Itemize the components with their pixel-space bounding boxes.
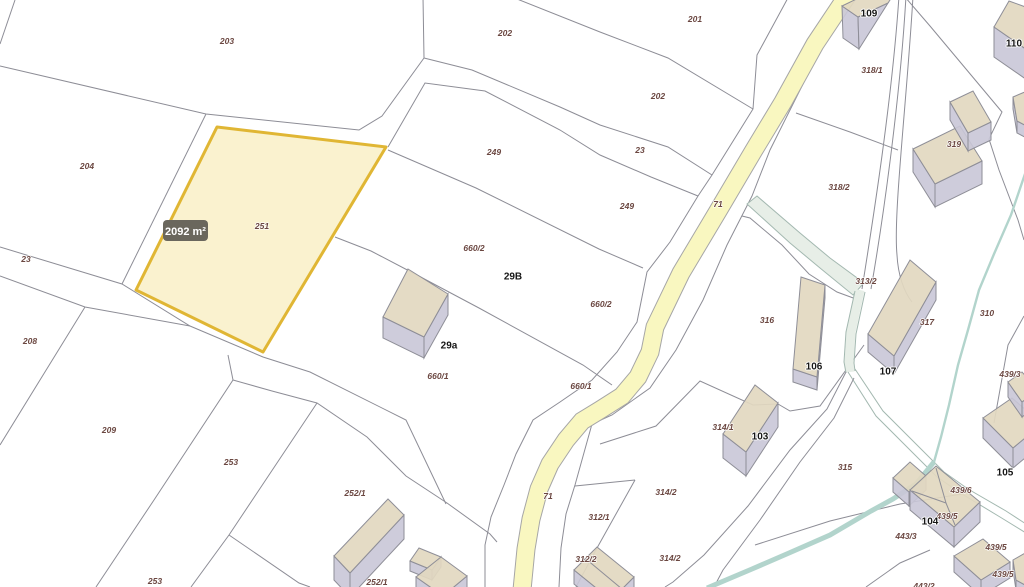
svg-text:660/2: 660/2 [463,243,485,253]
svg-text:318/2: 318/2 [828,182,850,192]
svg-text:660/2: 660/2 [590,299,612,309]
svg-text:317: 317 [920,317,935,327]
svg-text:439/6: 439/6 [949,485,972,495]
svg-text:314/2: 314/2 [659,553,681,563]
svg-text:202: 202 [497,28,512,38]
svg-text:249: 249 [486,147,501,157]
svg-text:109: 109 [861,9,878,20]
svg-text:251: 251 [254,221,269,231]
svg-text:252/1: 252/1 [343,488,366,498]
svg-text:315: 315 [838,462,852,472]
svg-text:71: 71 [543,491,553,501]
svg-text:249: 249 [619,201,634,211]
svg-text:23: 23 [634,145,645,155]
svg-text:319: 319 [947,139,961,149]
svg-text:105: 105 [997,468,1014,479]
svg-text:29B: 29B [504,272,522,283]
svg-text:312/1: 312/1 [588,512,610,522]
svg-text:439/5: 439/5 [935,511,958,521]
svg-text:253: 253 [147,576,162,586]
svg-text:204: 204 [79,161,94,171]
svg-text:209: 209 [101,425,116,435]
svg-text:104: 104 [922,517,939,528]
svg-text:316: 316 [760,315,774,325]
svg-text:202: 202 [650,91,665,101]
svg-text:314/2: 314/2 [655,487,677,497]
svg-text:313/2: 313/2 [855,276,877,286]
svg-text:318/1: 318/1 [861,65,883,75]
svg-text:107: 107 [880,367,897,378]
svg-text:443/3: 443/3 [894,531,917,541]
svg-text:310: 310 [980,308,994,318]
svg-text:660/1: 660/1 [427,371,449,381]
svg-text:106: 106 [806,362,823,373]
svg-text:312/2: 312/2 [575,554,597,564]
svg-text:314/1: 314/1 [712,422,734,432]
svg-text:2092 m²: 2092 m² [165,226,206,238]
svg-text:439/5: 439/5 [984,542,1007,552]
svg-text:660/1: 660/1 [570,381,592,391]
svg-text:71: 71 [713,199,723,209]
svg-text:201: 201 [687,14,702,24]
svg-text:203: 203 [219,36,234,46]
svg-text:208: 208 [22,336,37,346]
svg-text:253: 253 [223,457,238,467]
svg-text:110: 110 [1006,39,1023,50]
svg-text:29a: 29a [441,341,458,352]
svg-text:252/1: 252/1 [365,577,388,587]
svg-text:23: 23 [20,254,31,264]
svg-text:439/3: 439/3 [998,369,1021,379]
svg-text:439/5: 439/5 [991,569,1014,579]
svg-text:103: 103 [752,432,769,443]
svg-text:443/2: 443/2 [912,581,935,587]
